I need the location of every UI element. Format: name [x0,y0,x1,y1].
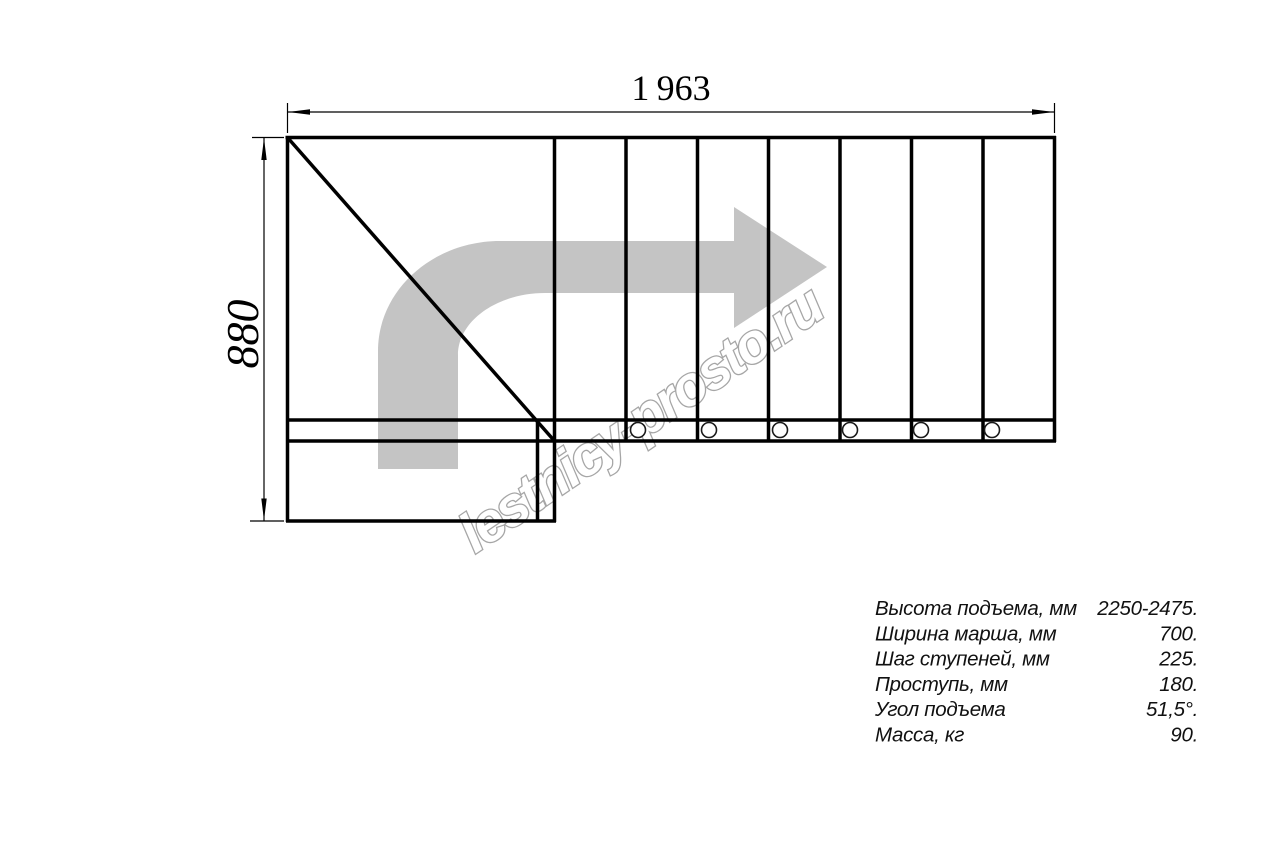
svg-text:Шаг ступеней, мм: Шаг ступеней, мм [875,648,1050,671]
svg-text:Ширина марша, мм: Ширина марша, мм [875,622,1057,645]
svg-text:Масса, кг: Масса, кг [875,724,964,747]
svg-text:225.: 225. [1158,648,1198,671]
svg-text:Угол подъема: Угол подъема [874,698,1006,721]
svg-text:90.: 90. [1170,724,1198,747]
svg-text:2250-2475.: 2250-2475. [1096,597,1198,620]
svg-text:Проступь, мм: Проступь, мм [875,673,1008,696]
svg-text:880: 880 [217,300,268,369]
svg-text:Высота подъема, мм: Высота подъема, мм [875,597,1077,620]
svg-text:1 963: 1 963 [631,68,710,108]
svg-text:700.: 700. [1159,622,1198,645]
svg-text:51,5°.: 51,5°. [1146,698,1198,721]
svg-text:180.: 180. [1159,673,1198,696]
